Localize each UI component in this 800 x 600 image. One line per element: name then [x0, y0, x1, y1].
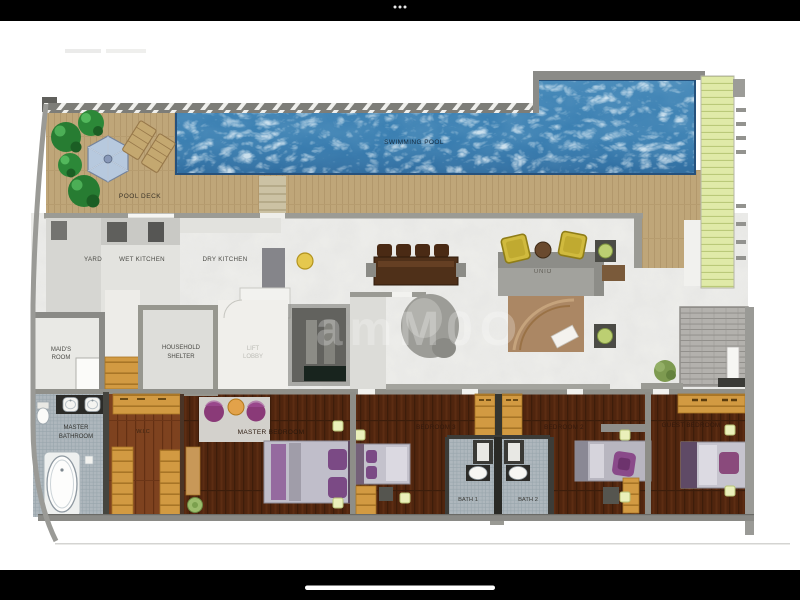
svg-text:W.I.C: W.I.C: [136, 429, 149, 435]
svg-text:BEDROOM 2: BEDROOM 2: [544, 424, 584, 431]
svg-text:LIFT: LIFT: [247, 346, 260, 352]
svg-text:DRY KITCHEN: DRY KITCHEN: [202, 256, 247, 263]
svg-text:MAID'S: MAID'S: [51, 347, 71, 353]
svg-text:LOBBY: LOBBY: [243, 354, 263, 360]
svg-text:ROOM: ROOM: [52, 355, 71, 361]
svg-text:SWIMMING POOL: SWIMMING POOL: [384, 139, 444, 146]
svg-text:HOUSEHOLD: HOUSEHOLD: [162, 345, 201, 351]
svg-text:MASTER: MASTER: [63, 425, 89, 431]
svg-text:BEDROOM 3: BEDROOM 3: [416, 424, 456, 431]
svg-text:amM0O: amM0O: [316, 303, 524, 356]
svg-text:WET KITCHEN: WET KITCHEN: [119, 256, 165, 263]
svg-text:UNIO: UNIO: [534, 269, 552, 275]
svg-text:BATHROOM: BATHROOM: [59, 434, 93, 440]
svg-text:GUEST BEDROOM: GUEST BEDROOM: [662, 422, 721, 429]
svg-text:YARD: YARD: [84, 256, 102, 263]
svg-text:POOL DECK: POOL DECK: [119, 193, 161, 200]
svg-text:BATH 1: BATH 1: [458, 497, 478, 503]
svg-text:BATH 2: BATH 2: [518, 497, 538, 503]
svg-text:SHELTER: SHELTER: [167, 354, 195, 360]
svg-text:MASTER BEDROOM: MASTER BEDROOM: [238, 429, 305, 436]
